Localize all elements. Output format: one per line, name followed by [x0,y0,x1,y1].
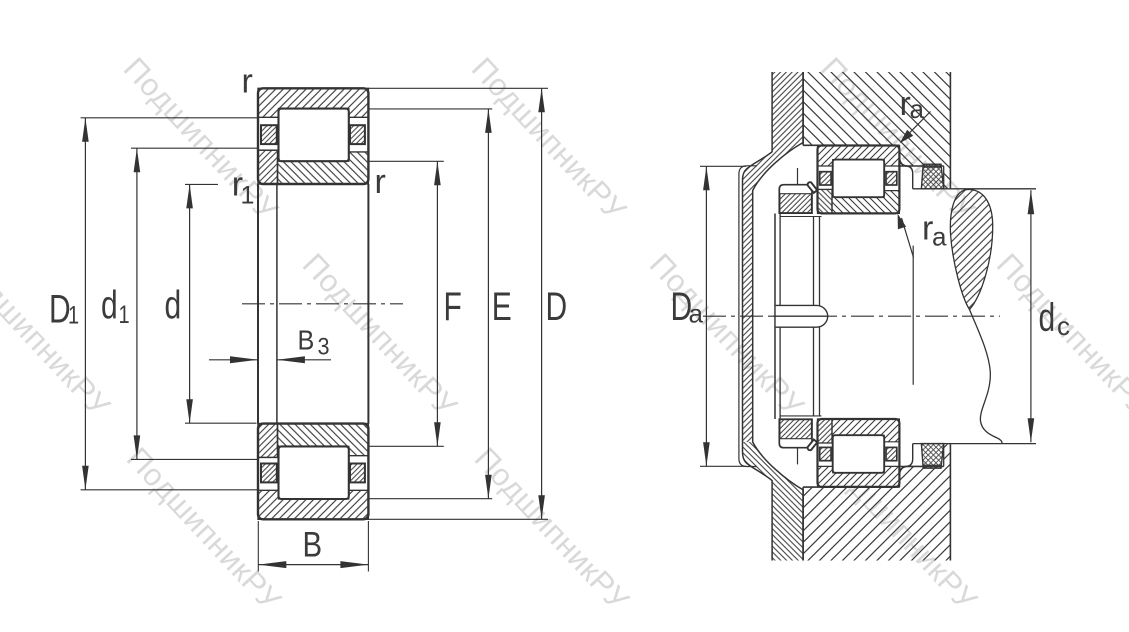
svg-text:B: B [298,324,315,356]
svg-text:r: r [242,63,253,101]
svg-text:a: a [910,94,925,124]
svg-text:d: d [1039,296,1056,340]
svg-text:ПодшипникРУ: ПодшипникРУ [0,247,117,424]
svg-text:c: c [1057,311,1070,341]
svg-text:1: 1 [68,301,79,329]
svg-text:E: E [492,285,512,329]
svg-text:ПодшипникРУ: ПодшипникРУ [643,247,811,424]
svg-text:1: 1 [241,182,255,210]
svg-text:a: a [689,299,704,329]
svg-text:a: a [932,222,947,252]
svg-text:B: B [303,525,323,564]
svg-text:1: 1 [119,301,130,329]
svg-text:d: d [101,284,118,328]
svg-text:D: D [546,285,568,329]
svg-text:ПодшипникРУ: ПодшипникРУ [465,51,633,228]
svg-text:F: F [444,285,462,329]
svg-text:d: d [165,284,182,328]
svg-text:r: r [375,163,386,201]
svg-text:ПодшипникРУ: ПодшипникРУ [468,441,636,618]
svg-text:3: 3 [318,332,330,359]
